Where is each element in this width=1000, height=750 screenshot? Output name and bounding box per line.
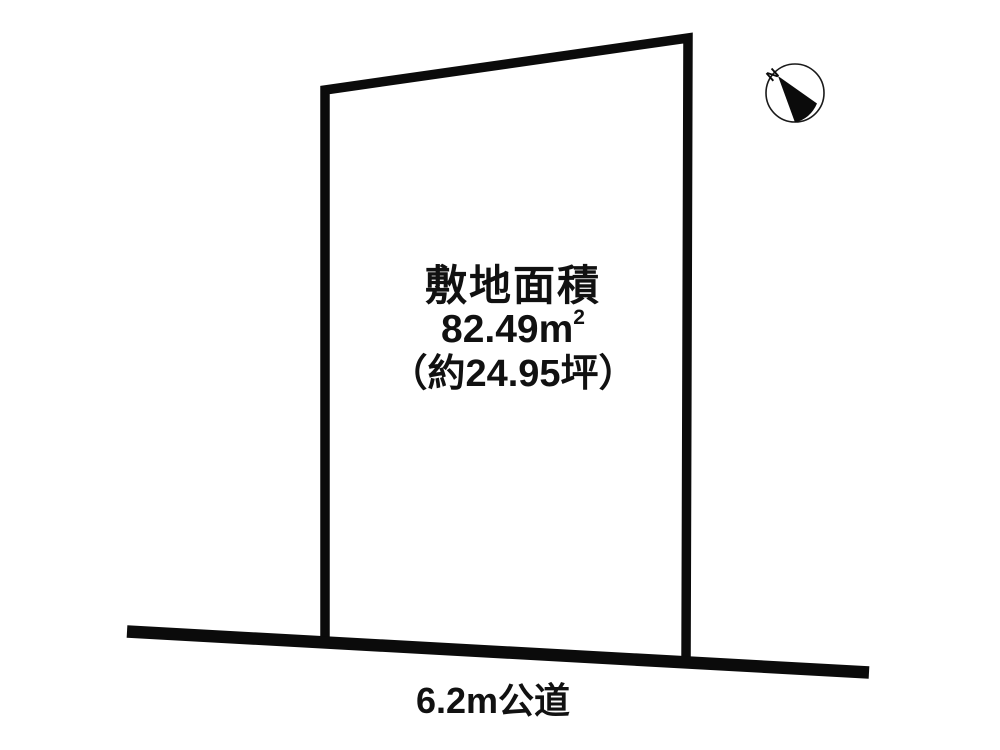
compass-icon: N [762,60,828,126]
area-title: 敷地面積 [389,263,636,309]
land-plot-diagram: 敷地面積 82.49m2 （約24.95坪） 6.2m公道 N [0,0,1000,750]
area-unit-exponent: 2 [573,306,585,329]
area-value-line: 82.49m2 [389,309,636,351]
area-value: 82.49 [441,308,539,351]
road-label: 6.2m公道 [416,683,570,719]
area-unit: m [539,308,574,351]
area-tsubo: （約24.95坪） [389,351,636,397]
road-line [127,632,869,673]
area-label: 敷地面積 82.49m2 （約24.95坪） [389,263,636,397]
